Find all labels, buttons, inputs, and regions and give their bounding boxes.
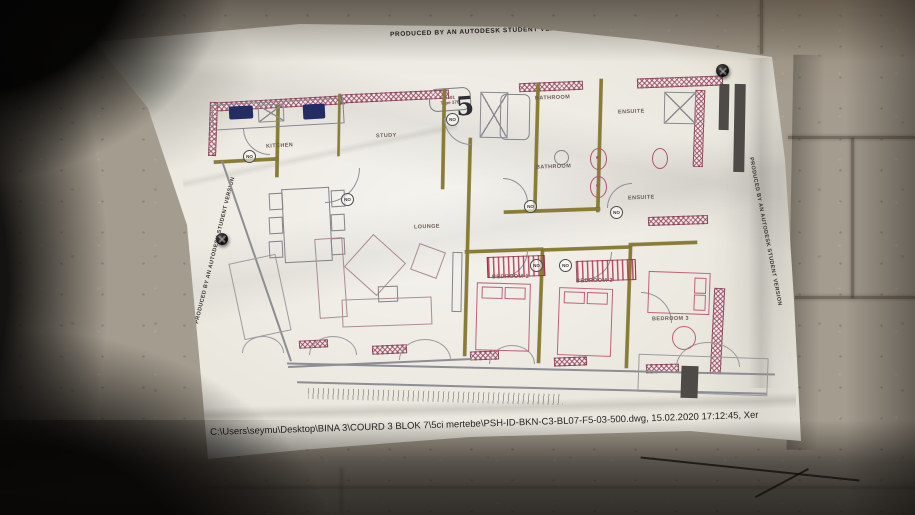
room-label-lounge: LOUNGE	[414, 224, 440, 231]
room-label-bedroom3: BEDROOM 3	[652, 316, 689, 323]
bed-symbol	[475, 282, 531, 351]
room-label-ensuite-lower: ENSUITE	[628, 195, 655, 202]
mortar-joint	[760, 0, 763, 54]
mortar-joint	[851, 138, 854, 298]
toilet-dot	[596, 156, 599, 159]
sink-symbol	[229, 105, 254, 119]
window-sill	[554, 356, 587, 366]
room-label-ensuite-upper: ENSUITE	[618, 109, 645, 116]
door-tag: NO	[341, 193, 354, 206]
mortar-joint	[340, 468, 343, 515]
mortar-joint	[210, 486, 915, 489]
column-symbol	[680, 366, 698, 399]
screw-pin	[216, 233, 228, 245]
bed-symbol	[647, 271, 710, 315]
toilet-symbol	[590, 148, 607, 170]
door-tag: NO	[243, 150, 256, 163]
round-table-symbol	[672, 326, 696, 350]
toilet-symbol	[590, 176, 607, 198]
window-x	[480, 92, 509, 138]
coffee-table-symbol	[378, 286, 399, 303]
door-tag: NO	[559, 259, 572, 272]
shower-symbol	[664, 92, 697, 125]
column-symbol	[733, 84, 746, 172]
toilet-symbol	[652, 148, 668, 169]
chair-symbol	[331, 214, 346, 232]
room-label-bathroom-upper: BATHROOM	[535, 94, 570, 101]
chair-symbol	[269, 241, 284, 259]
photo-scene: PRODUCED BY AN AUTODESK STUDENT VERSION …	[0, 0, 915, 515]
column-symbol	[719, 84, 730, 130]
chair-symbol	[269, 217, 284, 235]
screw-pin	[716, 64, 729, 77]
door-tag: NO	[610, 206, 623, 219]
room-label-study: STUDY	[376, 133, 397, 140]
door-tag: NO	[524, 200, 537, 213]
appliance-symbol	[258, 103, 285, 122]
room-label-bedroom2: BEDROOM 2	[576, 278, 613, 285]
toilet-dot	[596, 184, 599, 187]
bed-symbol	[557, 287, 613, 357]
chair-symbol	[269, 193, 284, 211]
door-tag: NO	[446, 113, 459, 126]
tv-unit-symbol	[451, 252, 462, 312]
room-label-bedroom1: BEDROOM 1	[492, 274, 529, 281]
hob-symbol	[303, 103, 326, 119]
room-label-bathroom-lower: BATHROOM	[536, 163, 571, 170]
door-tag: NO	[530, 259, 543, 272]
